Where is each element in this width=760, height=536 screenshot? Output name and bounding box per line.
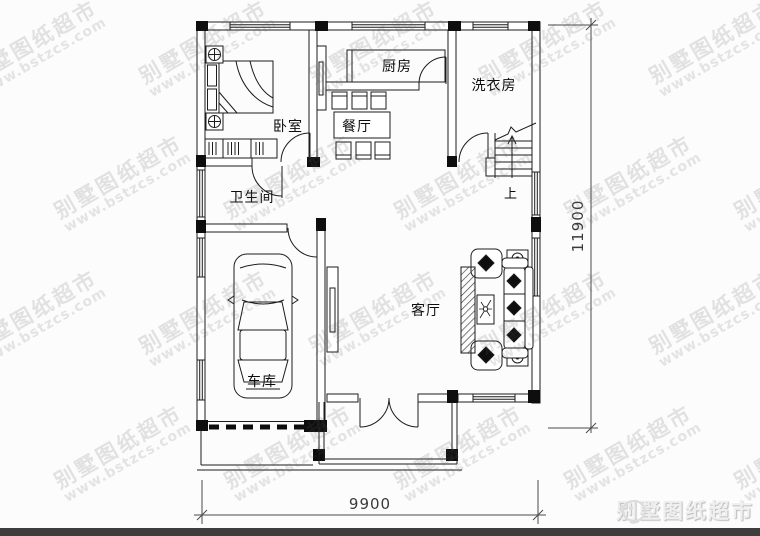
room-label-bathroom: 卫生间: [230, 190, 275, 206]
dimension-bottom-value: 9900: [349, 495, 391, 513]
room-label-garage: 车库: [247, 373, 277, 390]
wardrobe: [205, 139, 277, 158]
garage-door: [288, 228, 317, 258]
bed: [205, 61, 273, 113]
bedroom-door: [281, 133, 310, 162]
room-label-dining: 餐厅: [342, 119, 372, 135]
window-right-stairs: [532, 172, 540, 215]
stairs-up-arrow: [508, 136, 516, 178]
logo-icon: [616, 495, 650, 525]
plant-table: [477, 295, 494, 324]
kitchen-door: [419, 57, 446, 84]
wall-fixture-symbols: [206, 46, 223, 130]
window-top-laundry: [473, 22, 508, 30]
garage-shutter-door: [208, 422, 304, 428]
floor-plan-svg: 9900 11900 卧室 厨房 洗衣房 餐厅 卫生间 客厅 车库 上: [0, 0, 760, 536]
laundry-door: [459, 133, 488, 162]
window-top-bedroom: [230, 22, 290, 30]
floor-plan-page: 9900 11900 卧室 厨房 洗衣房 餐厅 卫生间 客厅 车库 上 别墅图纸…: [0, 0, 760, 536]
porch: [313, 402, 462, 470]
window-left-bathroom: [197, 170, 205, 217]
room-label-living: 客厅: [411, 302, 441, 319]
sofa-three-seat: [502, 258, 533, 358]
stairs-up-label: 上: [504, 187, 518, 202]
armchair-bottom: [471, 341, 502, 370]
dimension-right-value: 11900: [569, 200, 587, 253]
entry-double-door: [360, 398, 418, 427]
shaft-panel-living: [327, 267, 338, 352]
bottom-bar: [0, 528, 760, 536]
site-logo: 别墅图纸超市: [616, 495, 754, 525]
driveway: [197, 430, 317, 470]
armchair-top: [471, 249, 502, 278]
sofa-set: [461, 249, 533, 370]
room-label-kitchen: 厨房: [382, 59, 412, 75]
window-bottom-living: [473, 394, 515, 402]
room-label-bedroom: 卧室: [273, 118, 303, 135]
shaft-panel-dining: [317, 46, 326, 110]
window-left-garage-1: [197, 238, 205, 277]
window-left-garage-2: [197, 360, 205, 400]
coffee-table: [461, 267, 475, 353]
room-label-laundry: 洗衣房: [472, 78, 517, 94]
stairs: [486, 123, 536, 178]
window-top-kitchen: [352, 22, 425, 30]
